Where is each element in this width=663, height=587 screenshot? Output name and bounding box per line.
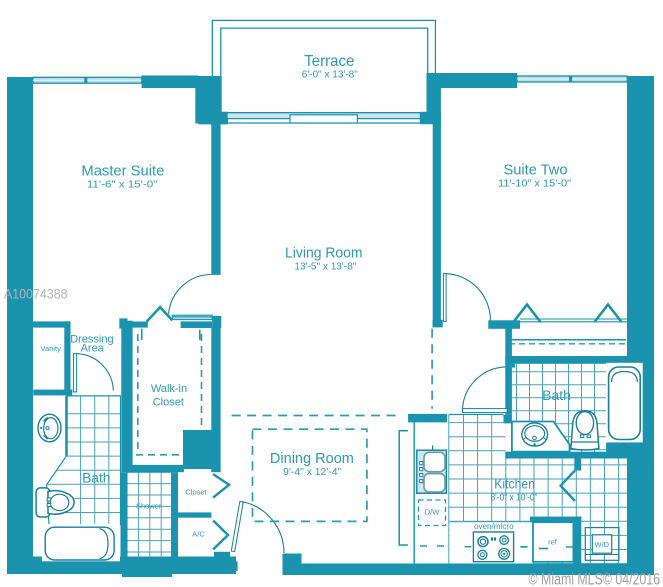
- svg-text:11'-10" x 15'-0": 11'-10" x 15'-0": [498, 178, 571, 190]
- svg-text:A10074388: A10074388: [4, 287, 68, 302]
- svg-text:Area: Area: [81, 342, 105, 354]
- svg-text:Suite Two: Suite Two: [504, 162, 568, 179]
- svg-text:Dining Room: Dining Room: [270, 451, 354, 467]
- svg-text:Bath: Bath: [82, 470, 110, 485]
- svg-text:Closet: Closet: [185, 488, 207, 497]
- svg-text:Closet: Closet: [153, 396, 184, 408]
- svg-text:Terrace: Terrace: [304, 53, 354, 70]
- svg-text:A/C: A/C: [192, 530, 205, 539]
- svg-text:13'-5" x 13'-8": 13'-5" x 13'-8": [294, 260, 356, 272]
- svg-text:Shower: Shower: [136, 502, 162, 511]
- svg-text:Master Suite: Master Suite: [81, 162, 164, 179]
- svg-text:D/W: D/W: [425, 508, 441, 517]
- svg-text:Living Room: Living Room: [285, 244, 363, 261]
- svg-text:8'-0" x 10'-0": 8'-0" x 10'-0": [491, 493, 538, 504]
- svg-text:oven/micro: oven/micro: [474, 522, 514, 531]
- svg-text:W/D: W/D: [595, 540, 610, 549]
- svg-text:Kitchen: Kitchen: [494, 476, 535, 491]
- svg-text:Walk-in: Walk-in: [151, 383, 187, 395]
- svg-text:11'-6" x 15'-0": 11'-6" x 15'-0": [87, 178, 158, 190]
- svg-text:© Miami MLS© 04/2016: © Miami MLS© 04/2016: [529, 571, 661, 587]
- svg-text:Bath: Bath: [542, 387, 571, 403]
- svg-text:9'-4" x 12'-4": 9'-4" x 12'-4": [283, 467, 341, 478]
- svg-text:6'-0" x 13'-8": 6'-0" x 13'-8": [302, 70, 358, 81]
- svg-text:Vanity: Vanity: [41, 344, 62, 353]
- svg-text:ref: ref: [548, 538, 558, 547]
